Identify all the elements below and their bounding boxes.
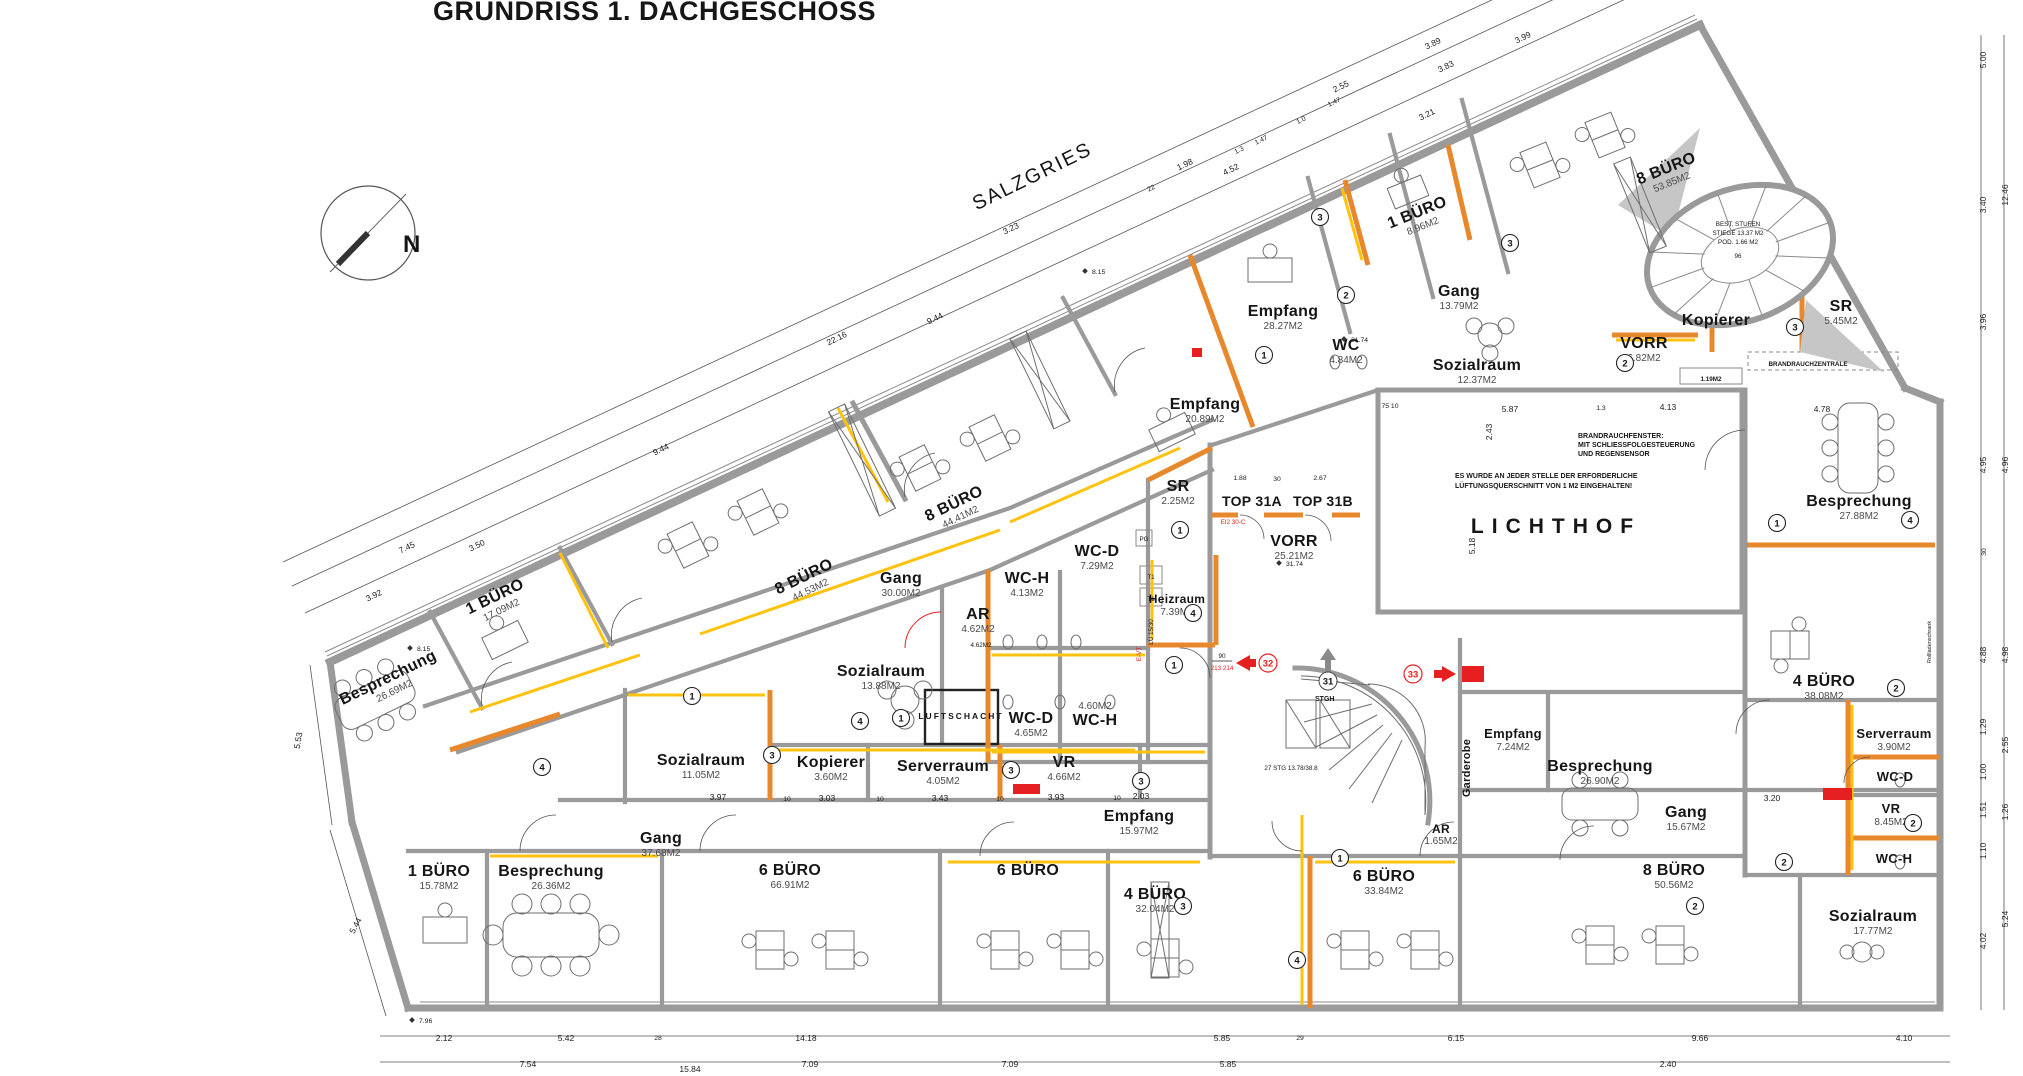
room-buero1-sw: 1 BÜRO15.78M2 — [408, 861, 470, 892]
window-tag: 3 — [769, 751, 774, 762]
dim-label: 12.46 — [2000, 184, 2010, 206]
room-area: 8.45M2 — [1874, 817, 1908, 828]
room-name: Sozialraum — [657, 752, 745, 769]
pg-label: PG — [1139, 536, 1148, 543]
room-sr-mid: SR2.25M2 — [1161, 478, 1195, 507]
exit-tag-number: 32 — [1263, 659, 1274, 670]
room-area: 27.88M2 — [1840, 511, 1879, 522]
room-area: 26.36M2 — [532, 881, 571, 892]
room-area: 4.13M2 — [1010, 588, 1044, 599]
dim-label: 5.85 — [1220, 1059, 1237, 1069]
room-name: Empfang — [1170, 396, 1241, 413]
window-tag: 2 — [1910, 819, 1915, 830]
stair-note-line1: BEST. STUFEN — [1716, 221, 1761, 228]
room-area: 15.67M2 — [1667, 822, 1706, 833]
room-name: 4 BÜRO — [1793, 671, 1855, 690]
room-wch-mid: WC-H4.13M2 — [1005, 570, 1050, 599]
room-besprechung-ne: Besprechung27.88M2 — [1806, 493, 1912, 522]
dim-label: 30 — [1981, 548, 1988, 556]
room-buero6-b: 6 BÜRO — [997, 860, 1059, 879]
room-gang-w: Gang37.68M2 — [640, 830, 682, 859]
window-tag: 2 — [1781, 858, 1786, 869]
room-area: 4.62M2 — [961, 624, 995, 635]
window-tag: 3 — [1008, 766, 1013, 777]
room-area: 1.65M2 — [1424, 836, 1458, 847]
window-tag: 4 — [857, 717, 863, 728]
dim-label: 3.21 — [1417, 106, 1436, 122]
room-gang-r: Gang15.67M2 — [1665, 804, 1707, 833]
room-name: Gang — [880, 570, 922, 587]
room-vr-mid: VR4.66M2 — [1047, 754, 1081, 783]
room-vr-r: VR8.45M2 — [1874, 801, 1908, 828]
window-tag: 1 — [1171, 661, 1177, 672]
room-area: 12.37M2 — [1458, 375, 1497, 386]
note-brandrauchfenster-1: BRANDRAUCHFENSTER: — [1578, 433, 1664, 440]
room-wch-low: WC-H4.60M2 — [1073, 701, 1118, 729]
dim-label: 30 — [1273, 476, 1281, 483]
exit-tag-number: 31 — [1323, 677, 1334, 688]
room-empfang-a: Empfang20.89M2 — [1170, 396, 1241, 425]
room-name: Serverraum — [897, 758, 989, 775]
room-name: WC-H — [1876, 851, 1913, 866]
dim-label: 10 — [1113, 795, 1121, 802]
room-area: 50.56M2 — [1655, 880, 1694, 891]
dim-label: 5.24 — [2000, 910, 2010, 927]
stair-note-line3: POD. 1.66 M2 — [1718, 239, 1758, 246]
dim-label: 9.66 — [1692, 1033, 1709, 1043]
room-name: WC-D — [1877, 769, 1914, 784]
room-kopierer-top: Kopierer — [1682, 312, 1750, 329]
dim-label: 4.13 — [1660, 402, 1677, 412]
dim-label: 4.88 — [1978, 646, 1988, 663]
room-name: WC-H — [1005, 570, 1050, 587]
t1-label-a: T1 — [1147, 574, 1155, 581]
room-area: 4.05M2 — [926, 776, 960, 787]
room-name: VR — [1053, 754, 1076, 771]
room-name: Gang — [1438, 283, 1480, 300]
room-serverraum-r: Serverraum3.90M2 — [1856, 726, 1931, 753]
room-area: 5.45M2 — [1824, 316, 1858, 327]
room-name: WC-D — [1009, 710, 1054, 727]
dim-label: 7.54 — [520, 1059, 537, 1069]
dim-label: 3.03 — [819, 793, 836, 803]
room-name: Besprechung — [1547, 758, 1653, 775]
room-area: 4.84M2 — [1329, 355, 1363, 366]
dim-label: 5.44 — [347, 916, 364, 936]
floorplan-canvas: BEST. STUFEN STIEGE 13.37 M2 POD. 1.66 M… — [0, 0, 2023, 1076]
room-name: Gang — [1665, 804, 1707, 821]
window-tag: 2 — [1692, 902, 1697, 913]
dim-label: 1.51 — [1978, 801, 1988, 818]
room-name: Sozialraum — [1433, 357, 1521, 374]
street-label: SALZGRIES — [969, 138, 1096, 215]
dim-label: 5.53 — [292, 731, 305, 749]
room-area: 38.08M2 — [1805, 691, 1844, 702]
room-name: VORR — [1620, 335, 1668, 352]
room-besprechung-nw: Besprechung26.69M2 — [337, 647, 445, 719]
room-name: 1 BÜRO — [408, 861, 470, 880]
stair-note-line2: STIEGE 13.37 M2 — [1712, 230, 1764, 237]
window-tag: 4 — [1907, 516, 1913, 527]
dim-label: 5.42 — [558, 1033, 575, 1043]
window-tag: 1 — [1774, 519, 1780, 530]
room-area: 4.60M2 — [1078, 701, 1112, 712]
room-name: Empfang — [1248, 303, 1319, 320]
room-wcd-low: WC-D4.65M2 — [1009, 710, 1054, 739]
room-area: 26.90M2 — [1581, 776, 1620, 787]
room-name: Gang — [640, 830, 682, 847]
window-tag: 1 — [1261, 351, 1267, 362]
room-wch-r: WC-H — [1876, 851, 1913, 866]
level-marker-value: 7.96 — [419, 1018, 432, 1025]
dim-label: 5.85 — [1214, 1033, 1231, 1043]
dim-label: 2.43 — [1484, 423, 1494, 440]
room-area: 7.24M2 — [1496, 742, 1530, 753]
dim-label: 4.95 — [1978, 456, 1988, 473]
room-wcd-r: WC-D — [1877, 769, 1914, 784]
level-marker-value: 8.15 — [1092, 269, 1105, 276]
evt-label: E-VT — [1136, 647, 1143, 661]
dim-label: 1.47 — [1254, 135, 1269, 147]
exit-marker-33: 33 — [1404, 665, 1456, 683]
dim-label: 6.15 — [1448, 1033, 1465, 1043]
dim-label: 3.97 — [710, 792, 727, 802]
room-name: Heizraum — [1149, 592, 1205, 606]
note-brandrauchfenster-3: UND REGENSENSOR — [1578, 451, 1650, 458]
level-marker-value: 31.74 — [1286, 561, 1303, 568]
note-brandrauchfenster-2: MIT SCHLIESSFOLGESTEUERUNG — [1578, 442, 1696, 449]
dim-label: 2.55 — [1331, 78, 1350, 94]
dim-label: 3.40 — [1978, 196, 1988, 213]
window-tag: 3 — [1138, 777, 1143, 788]
room-area: 13.88M2 — [862, 681, 901, 692]
room-sozialraum-w: Sozialraum11.05M2 — [657, 752, 745, 781]
level-marker-value: 8.15 — [417, 646, 430, 653]
dim-label: 3.99 — [1513, 29, 1532, 45]
room-area: 11.05M2 — [682, 770, 721, 781]
dim-label: 14.18 — [795, 1033, 817, 1043]
dim-label: 5.87 — [1502, 404, 1519, 414]
dim-label: 1.88 — [1233, 475, 1246, 482]
small-room-area-label: 1.19M2 — [1700, 376, 1722, 383]
room-name: Serverraum — [1856, 726, 1931, 741]
dim-label: 10 — [783, 796, 791, 803]
dim-label: 1.3 — [1234, 145, 1246, 156]
room-name: 6 BÜRO — [997, 860, 1059, 879]
level-markers: 8.15 8.15 31.74 31.74 7.96 — [407, 268, 1368, 1025]
window-tag: 3 — [1317, 213, 1322, 224]
fire-rating-label: EI2 30-C — [1221, 519, 1246, 526]
room-sozialraum-top: Sozialraum12.37M2 — [1433, 357, 1521, 386]
page-title: GRUNDRISS 1. DACHGESCHOSS — [433, 0, 876, 26]
top31a-label: TOP 31A — [1222, 493, 1282, 509]
window-tag: 2 — [1893, 684, 1898, 695]
door-width-label: 90 — [1218, 653, 1226, 660]
dim-label: 4.02 — [1978, 932, 1988, 949]
dim-label: 3.43 — [932, 793, 949, 803]
dim-label: 3.89 — [1423, 35, 1442, 51]
room-area: 3.60M2 — [814, 772, 848, 783]
window-tag: 1 — [1177, 526, 1183, 537]
room-name: Besprechung — [498, 863, 604, 880]
dim-label: 1.98 — [1175, 156, 1194, 172]
room-name: 8 BÜRO — [1643, 860, 1705, 879]
luftschacht-label: LUFTSCHACHT — [918, 711, 1003, 721]
room-wcd-mid: WC-D7.29M2 — [1075, 543, 1120, 572]
room-area: 15.78M2 — [420, 881, 459, 892]
room-area: 17.77M2 — [1854, 926, 1893, 937]
brandrauchzentrale-label: BRANDRAUCHZENTRALE — [1768, 361, 1847, 368]
room-area: 37.68M2 — [642, 848, 681, 859]
dim-label: 3.83 — [1436, 58, 1455, 74]
ar-sub-area: 4.62M2 — [970, 642, 992, 649]
dim-label: 2.67 — [1313, 475, 1326, 482]
room-name: Besprechung — [1806, 493, 1912, 510]
level-marker-value: 31.74 — [1351, 337, 1368, 344]
dim-label: 22 — [1146, 184, 1156, 194]
room-name: Sozialraum — [1829, 908, 1917, 925]
window-tag: 1 — [898, 714, 904, 725]
dim-label: 28 — [654, 1035, 662, 1042]
room-area: 4.66M2 — [1047, 772, 1081, 783]
room-name: Garderobe — [1461, 739, 1473, 797]
dim-label: 2.40 — [1660, 1059, 1677, 1069]
room-name: VR — [1882, 801, 1901, 816]
dim-label: 15.84 — [679, 1064, 701, 1074]
dim-label: 5.00 — [1978, 51, 1988, 68]
room-kopierer-mid: Kopierer3.60M2 — [797, 754, 865, 783]
window-tag: 3 — [1792, 323, 1797, 334]
dim-label: 4.96 — [2000, 456, 2010, 473]
dim-label: 7.09 — [802, 1059, 819, 1069]
exit-marker-32: 32 — [1236, 654, 1277, 672]
north-compass-icon: N — [321, 186, 420, 280]
room-buero6-a: 6 BÜRO66.91M2 — [759, 860, 821, 891]
room-area: 2.25M2 — [1161, 496, 1195, 507]
dim-label: 29 — [1296, 1035, 1304, 1042]
dim-label: 1.26 — [2000, 803, 2010, 820]
dim-label: 1.47 — [1327, 97, 1342, 109]
room-area: 28.27M2 — [1264, 321, 1303, 332]
dim-label: 3.93 — [1048, 792, 1065, 802]
window-tag: 3 — [1180, 902, 1185, 913]
room-name: Kopierer — [1682, 312, 1750, 329]
room-empfang-b: Empfang28.27M2 — [1248, 303, 1319, 332]
dim-label: 4.98 — [2000, 646, 2010, 663]
note-lueftung-1: ES WURDE AN JEDER STELLE DER ERFORDERLIC… — [1455, 473, 1638, 480]
dim-label: 2.12 — [436, 1033, 453, 1043]
room-name: AR — [1432, 822, 1450, 836]
dim-label: 4.52 — [1221, 161, 1240, 177]
rollladenschrank-label: Rollladenschrank — [1927, 621, 1933, 663]
main-staircase-stgh — [1295, 668, 1430, 823]
compass-north-label: N — [403, 231, 420, 258]
stair-count-label: 27 STG 13.78/38.8 — [1264, 765, 1318, 772]
room-buero8-c: 8 BÜRO50.56M2 — [1643, 860, 1705, 891]
lichthof-label: LICHTHOF — [1471, 515, 1641, 538]
room-name: SR — [1167, 478, 1190, 495]
room-name: Empfang — [1484, 726, 1542, 741]
room-area: 15.97M2 — [1120, 826, 1159, 837]
room-name: WC-D — [1075, 543, 1120, 560]
room-empfang-d: Empfang7.24M2 — [1484, 726, 1542, 753]
door-height-label: 213 214 — [1211, 665, 1234, 672]
dim-label: 3.92 — [364, 587, 383, 603]
room-area: 13.79M2 — [1440, 301, 1479, 312]
room-buero6-c: 6 BÜRO33.84M2 — [1353, 866, 1415, 897]
room-gang-top: Gang13.79M2 — [1438, 283, 1480, 312]
room-area: 20.89M2 — [1186, 414, 1225, 425]
room-area: 7.29M2 — [1080, 561, 1114, 572]
room-name: SR — [1830, 298, 1853, 315]
dim-label: 1.29 — [1978, 718, 1988, 735]
dim-label: 1.10 — [1978, 842, 1988, 859]
dim-label: 7.45 — [397, 539, 416, 555]
dim-label: 75 10 — [1381, 403, 1398, 410]
room-name: WC-H — [1073, 712, 1118, 729]
dim-label: 9.44 — [651, 441, 670, 457]
room-name: Empfang — [1104, 808, 1175, 825]
room-area: 3.90M2 — [1877, 742, 1911, 753]
dim-label: 4.10 — [1896, 1033, 1913, 1043]
dim-label: 9.44 — [925, 310, 944, 326]
room-gang-main: Gang30.00M2 — [880, 570, 922, 599]
room-besprechung-r: Besprechung26.90M2 — [1547, 758, 1653, 787]
dim-label: 10 — [996, 796, 1004, 803]
exit-tag-number: 33 — [1408, 670, 1419, 681]
note-lueftung-2: LÜFTUNGSQUERSCHNITT VON 1 M2 EINGEHALTEN… — [1455, 481, 1632, 490]
room-name: Kopierer — [797, 754, 865, 771]
top31b-label: TOP 31B — [1293, 493, 1353, 509]
dim-label: 7.09 — [1002, 1059, 1019, 1069]
dim-label: 10 — [876, 796, 884, 803]
dim-label: 1.00 — [1978, 763, 1988, 780]
room-besprechung-s: Besprechung26.36M2 — [498, 863, 604, 892]
room-empfang-c: Empfang15.97M2 — [1104, 808, 1175, 837]
room-buero8-a: 8 BÜRO44.53M2 — [771, 554, 841, 609]
window-tag: 2 — [1622, 359, 1627, 370]
dim-label: 1.0 — [1296, 115, 1308, 126]
window-tag: 4 — [1190, 609, 1196, 620]
dim-label: 22.16 — [825, 329, 849, 347]
window-tag: 1 — [1337, 854, 1343, 865]
room-name: Sozialraum — [837, 663, 925, 680]
room-garderobe: Garderobe — [1461, 739, 1473, 797]
dim-label: 2.55 — [2000, 736, 2010, 753]
window-tag: 2 — [1343, 291, 1348, 302]
window-tag: 4 — [539, 763, 545, 774]
room-name: VORR — [1270, 533, 1318, 550]
room-buero4-r: 4 BÜRO38.08M2 — [1793, 671, 1855, 702]
dim-label: 1.3 — [1596, 405, 1606, 412]
t1-label-b: T1 — [1147, 596, 1155, 603]
dim-label: 3.23 — [1001, 220, 1020, 236]
room-area: 4.65M2 — [1014, 728, 1048, 739]
dim-label: 3.50 — [467, 537, 486, 553]
dim-label: 3.20 — [1764, 793, 1781, 803]
room-sozialraum-se: Sozialraum17.77M2 — [1829, 908, 1917, 937]
room-name: AR — [966, 606, 990, 623]
room-area: 66.91M2 — [771, 880, 810, 891]
stgh-label: STGH — [1315, 696, 1334, 703]
room-area: 30.00M2 — [882, 588, 921, 599]
dim-label: 4.78 — [1814, 404, 1831, 414]
room-name: 6 BÜRO — [1353, 866, 1415, 885]
room-vorr-mid: VORR25.21M2 — [1270, 533, 1318, 562]
window-tag: 1 — [689, 692, 695, 703]
room-area: 33.84M2 — [1365, 886, 1404, 897]
window-tag: 4 — [1294, 956, 1300, 967]
stair-note-line4: 96 — [1734, 253, 1742, 260]
dim-label: 2.03 — [1133, 791, 1150, 801]
shaft-label: LÜ 15/30 — [1147, 619, 1155, 645]
dim-label: 3.96 — [1978, 313, 1988, 330]
room-serverraum-mid: Serverraum4.05M2 — [897, 758, 989, 787]
room-name: 6 BÜRO — [759, 860, 821, 879]
room-area: 32.04M2 — [1136, 904, 1175, 915]
window-tag: 3 — [1507, 239, 1512, 250]
dim-label: 5.18 — [1467, 537, 1477, 554]
